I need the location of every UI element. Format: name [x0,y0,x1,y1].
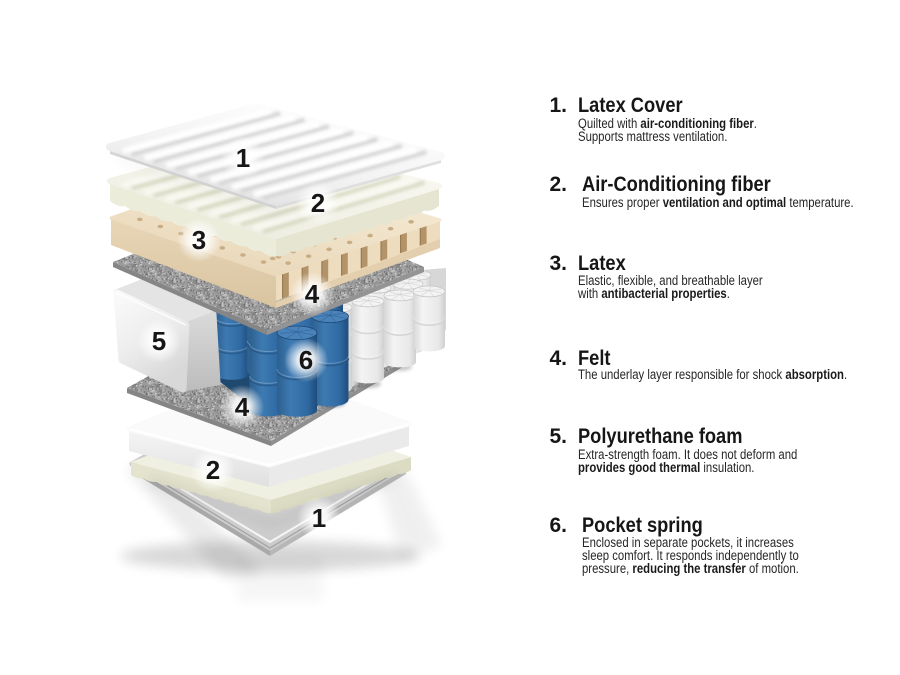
svg-text:6: 6 [299,345,313,375]
svg-text:1: 1 [236,143,250,173]
svg-text:2: 2 [311,188,325,218]
svg-text:5: 5 [152,326,166,356]
svg-text:1: 1 [312,503,326,533]
svg-text:2: 2 [206,455,220,485]
svg-text:3: 3 [192,225,206,255]
svg-text:4: 4 [305,279,320,309]
svg-text:4: 4 [235,392,250,422]
